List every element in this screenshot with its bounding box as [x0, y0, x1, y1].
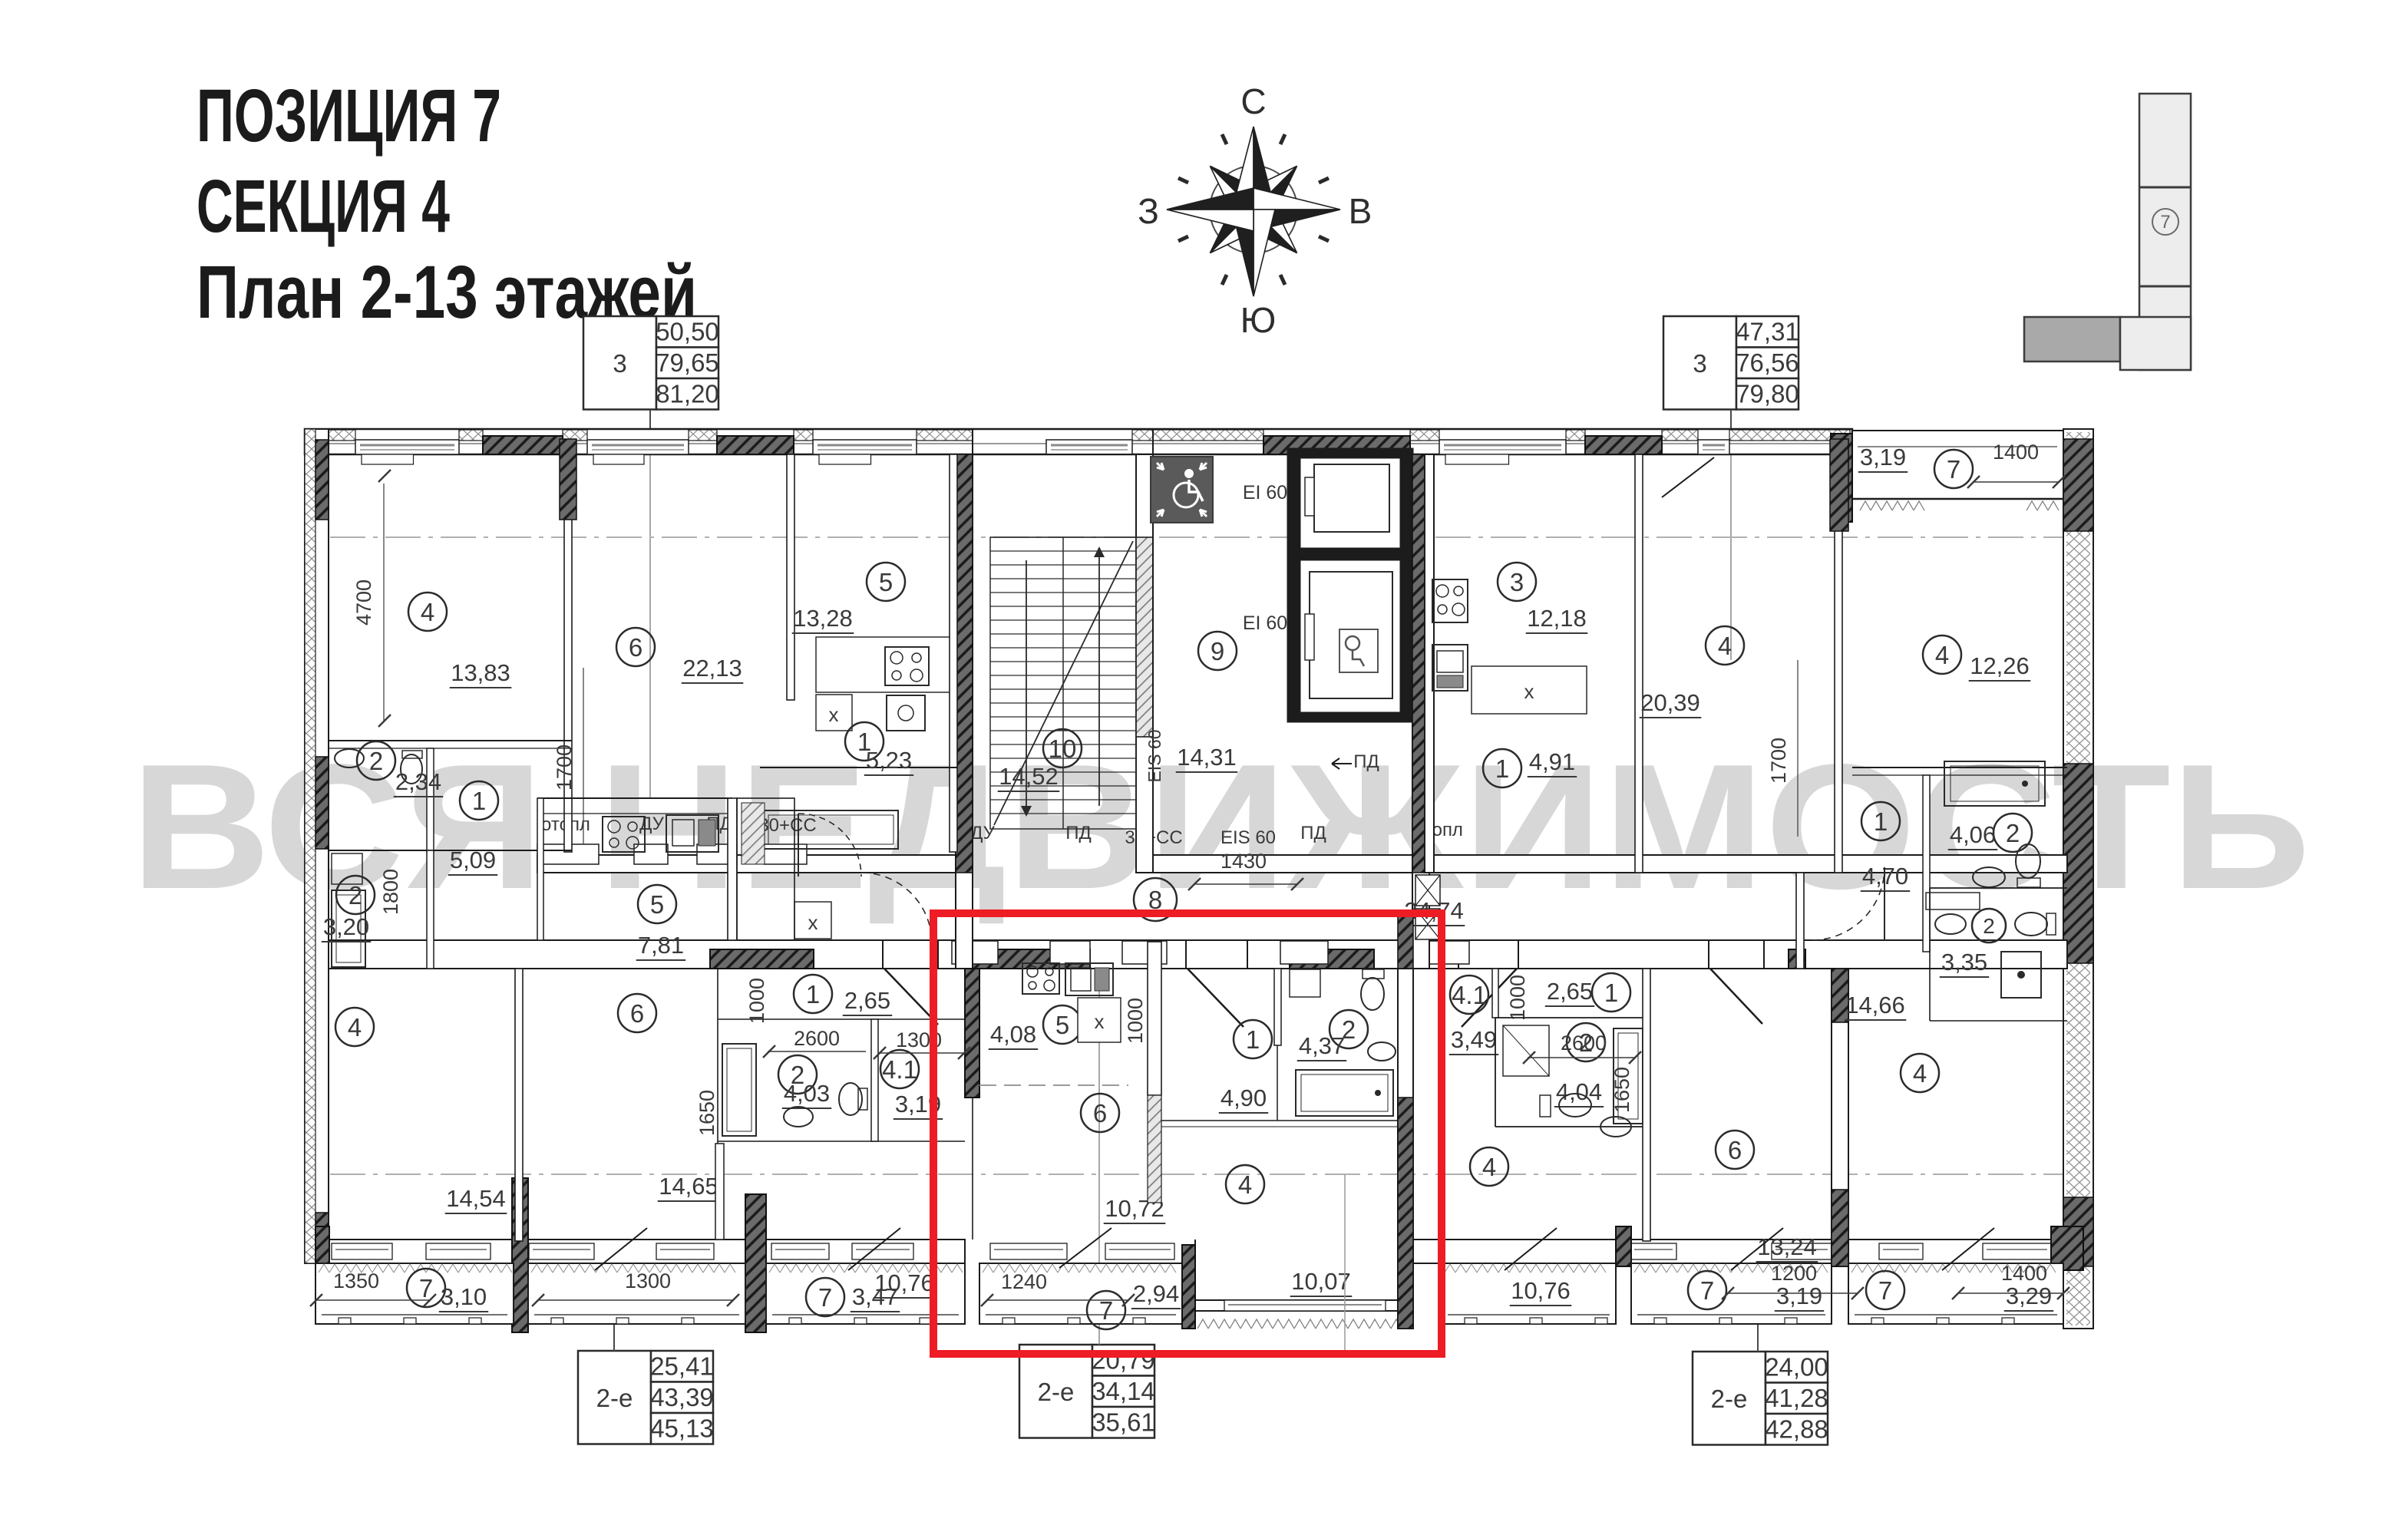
svg-text:14,31: 14,31: [1177, 744, 1237, 771]
svg-text:2-е: 2-е: [1038, 1378, 1075, 1406]
svg-text:С: С: [1240, 81, 1266, 121]
svg-text:1240: 1240: [1001, 1270, 1047, 1293]
svg-text:ПД: ПД: [1353, 751, 1379, 772]
svg-text:2-е: 2-е: [1711, 1385, 1748, 1413]
svg-text:81,20: 81,20: [656, 379, 719, 408]
svg-text:3,49: 3,49: [1451, 1026, 1497, 1053]
svg-text:14,54: 14,54: [446, 1185, 506, 1212]
svg-text:41,28: 41,28: [1765, 1384, 1828, 1412]
svg-text:1300: 1300: [625, 1269, 671, 1292]
svg-text:14,52: 14,52: [999, 763, 1059, 790]
svg-text:4: 4: [1718, 632, 1732, 660]
svg-text:Ю: Ю: [1240, 300, 1276, 340]
svg-text:4: 4: [1935, 641, 1949, 669]
svg-text:EIS 60: EIS 60: [1145, 729, 1164, 782]
svg-text:4,37: 4,37: [1299, 1032, 1345, 1059]
svg-text:2,94: 2,94: [1133, 1280, 1179, 1307]
svg-text:x: x: [808, 911, 818, 934]
svg-text:1: 1: [806, 980, 820, 1008]
svg-text:2600: 2600: [1561, 1032, 1607, 1055]
svg-text:4: 4: [1238, 1170, 1252, 1199]
svg-text:EI 60: EI 60: [1243, 482, 1287, 503]
svg-text:7: 7: [1878, 1276, 1892, 1305]
svg-text:1650: 1650: [1610, 1067, 1633, 1113]
svg-text:4.1: 4.1: [882, 1055, 917, 1084]
svg-text:6: 6: [629, 633, 642, 662]
svg-text:5: 5: [879, 568, 893, 596]
svg-text:5,09: 5,09: [450, 847, 496, 873]
svg-text:50,50: 50,50: [656, 317, 719, 345]
svg-text:79,65: 79,65: [656, 348, 719, 377]
svg-text:1000: 1000: [1506, 975, 1529, 1021]
svg-text:7: 7: [2160, 212, 2170, 233]
svg-text:1: 1: [472, 787, 486, 815]
svg-text:6: 6: [630, 999, 644, 1028]
svg-text:5,23: 5,23: [866, 747, 912, 774]
svg-text:1400: 1400: [1993, 441, 2039, 464]
svg-text:2,34: 2,34: [395, 768, 441, 795]
svg-text:ПД: ПД: [1300, 823, 1326, 843]
svg-text:5: 5: [1055, 1011, 1069, 1039]
svg-text:13,83: 13,83: [451, 659, 510, 686]
svg-text:EI 60: EI 60: [1243, 612, 1287, 634]
svg-text:10,76: 10,76: [1511, 1277, 1571, 1304]
svg-text:2-е: 2-е: [596, 1384, 633, 1412]
svg-text:5: 5: [650, 890, 664, 919]
svg-text:12,26: 12,26: [1970, 652, 2030, 679]
svg-text:3,20: 3,20: [323, 913, 369, 940]
svg-text:1: 1: [1604, 979, 1618, 1007]
svg-text:2: 2: [369, 747, 383, 775]
svg-text:3,29: 3,29: [2006, 1282, 2052, 1309]
svg-text:9: 9: [1211, 637, 1224, 665]
svg-text:10,76: 10,76: [874, 1269, 934, 1296]
svg-text:3,19: 3,19: [1860, 444, 1906, 470]
svg-text:4: 4: [348, 1013, 362, 1041]
svg-text:EIS 60: EIS 60: [1221, 827, 1276, 848]
svg-text:1800: 1800: [379, 869, 402, 915]
svg-text:ДУ: ДУ: [970, 823, 996, 843]
svg-text:4: 4: [421, 598, 434, 626]
svg-text:2: 2: [348, 881, 362, 909]
svg-text:4,04: 4,04: [1556, 1078, 1602, 1105]
svg-text:4: 4: [1913, 1059, 1927, 1088]
svg-text:34,14: 34,14: [1092, 1377, 1155, 1405]
svg-text:3,10: 3,10: [441, 1283, 487, 1310]
svg-text:3: 3: [1510, 568, 1524, 596]
svg-text:25,41: 25,41: [650, 1352, 714, 1380]
svg-text:СЕКЦИЯ 4: СЕКЦИЯ 4: [197, 164, 450, 248]
svg-text:42,88: 42,88: [1765, 1415, 1828, 1443]
svg-text:4,06: 4,06: [1950, 821, 1996, 848]
svg-text:4,08: 4,08: [990, 1021, 1036, 1048]
svg-text:1000: 1000: [1124, 998, 1147, 1044]
svg-text:З: З: [1138, 191, 1159, 231]
svg-text:10,07: 10,07: [1291, 1268, 1351, 1295]
svg-text:1700: 1700: [1767, 738, 1790, 784]
svg-text:24,00: 24,00: [1765, 1352, 1828, 1381]
svg-text:22,13: 22,13: [682, 655, 742, 682]
svg-text:4,91: 4,91: [1529, 748, 1575, 775]
svg-text:20,39: 20,39: [1640, 689, 1700, 716]
svg-text:10: 10: [1049, 734, 1077, 763]
svg-text:1: 1: [1246, 1025, 1260, 1054]
svg-text:1430: 1430: [1221, 850, 1267, 873]
svg-text:1650: 1650: [695, 1090, 718, 1136]
svg-text:4.1: 4.1: [1452, 981, 1487, 1009]
svg-text:14,65: 14,65: [659, 1173, 718, 1200]
svg-text:12,18: 12,18: [1527, 605, 1587, 632]
svg-text:2600: 2600: [794, 1027, 840, 1050]
svg-text:35,61: 35,61: [1092, 1408, 1155, 1436]
svg-text:13,28: 13,28: [793, 605, 853, 632]
svg-text:3,19: 3,19: [1776, 1282, 1822, 1309]
svg-text:В: В: [1349, 191, 1372, 231]
svg-text:13,24: 13,24: [1757, 1233, 1817, 1260]
svg-text:45,13: 45,13: [650, 1414, 714, 1442]
svg-text:6: 6: [1728, 1136, 1742, 1164]
svg-text:2: 2: [2006, 819, 2020, 847]
svg-text:7: 7: [1947, 455, 1960, 484]
svg-text:6: 6: [1093, 1099, 1107, 1127]
svg-text:76,56: 76,56: [1736, 348, 1799, 377]
svg-text:1200: 1200: [1771, 1262, 1817, 1285]
svg-text:x: x: [829, 703, 839, 726]
svg-text:43,39: 43,39: [650, 1383, 714, 1411]
svg-text:2: 2: [1983, 914, 1995, 938]
svg-text:14,66: 14,66: [1845, 992, 1905, 1018]
svg-text:7,81: 7,81: [638, 932, 684, 959]
svg-text:7: 7: [1700, 1276, 1714, 1305]
svg-text:4,90: 4,90: [1221, 1084, 1267, 1111]
svg-text:7: 7: [818, 1283, 832, 1312]
svg-text:1000: 1000: [745, 978, 768, 1024]
svg-text:1350: 1350: [333, 1269, 379, 1292]
svg-text:3: 3: [1693, 349, 1706, 378]
svg-text:4700: 4700: [352, 579, 375, 626]
svg-text:x: x: [1524, 680, 1534, 703]
svg-text:3,35: 3,35: [1941, 949, 1987, 975]
svg-text:30+СС: 30+СС: [758, 815, 816, 836]
svg-text:4,03: 4,03: [784, 1080, 830, 1107]
svg-text:79,80: 79,80: [1736, 379, 1799, 408]
svg-text:ПД: ПД: [1065, 823, 1092, 843]
svg-text:ПОЗИЦИЯ 7: ПОЗИЦИЯ 7: [197, 74, 501, 157]
svg-text:2,65: 2,65: [844, 987, 890, 1014]
svg-text:2,65: 2,65: [1547, 978, 1593, 1005]
svg-text:4: 4: [1482, 1153, 1496, 1181]
svg-text:1700: 1700: [553, 744, 576, 791]
svg-text:1: 1: [1495, 754, 1509, 783]
svg-text:3: 3: [613, 349, 626, 378]
svg-text:47,31: 47,31: [1736, 317, 1799, 345]
svg-text:1: 1: [1874, 807, 1888, 836]
svg-text:20,79: 20,79: [1092, 1345, 1155, 1374]
svg-text:x: x: [1095, 1010, 1105, 1033]
svg-text:1400: 1400: [2001, 1262, 2047, 1285]
